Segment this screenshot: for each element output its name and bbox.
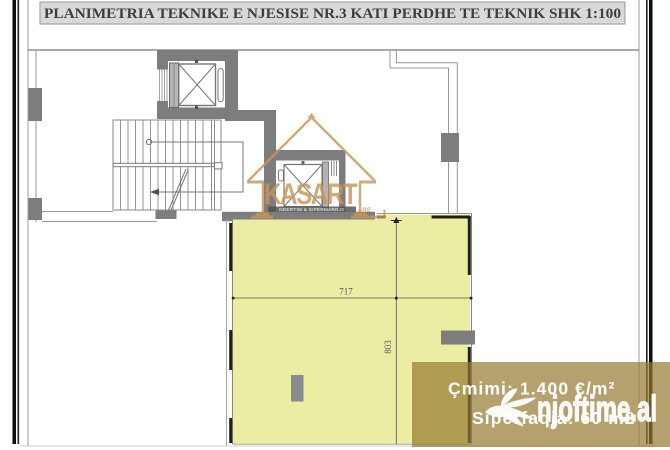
- svg-text:PLANIMETRIA TEKNIKE E NJESISE: PLANIMETRIA TEKNIKE E NJESISE NR.3 KATI …: [44, 6, 621, 22]
- svg-text:ARE: ARE: [358, 207, 372, 214]
- svg-text:NDERTIM & SIPERMARRJE: NDERTIM & SIPERMARRJE: [279, 207, 344, 212]
- svg-text:803: 803: [383, 340, 393, 354]
- svg-text:njoftime.al: njoftime.al: [537, 388, 657, 429]
- svg-text:717: 717: [339, 287, 353, 297]
